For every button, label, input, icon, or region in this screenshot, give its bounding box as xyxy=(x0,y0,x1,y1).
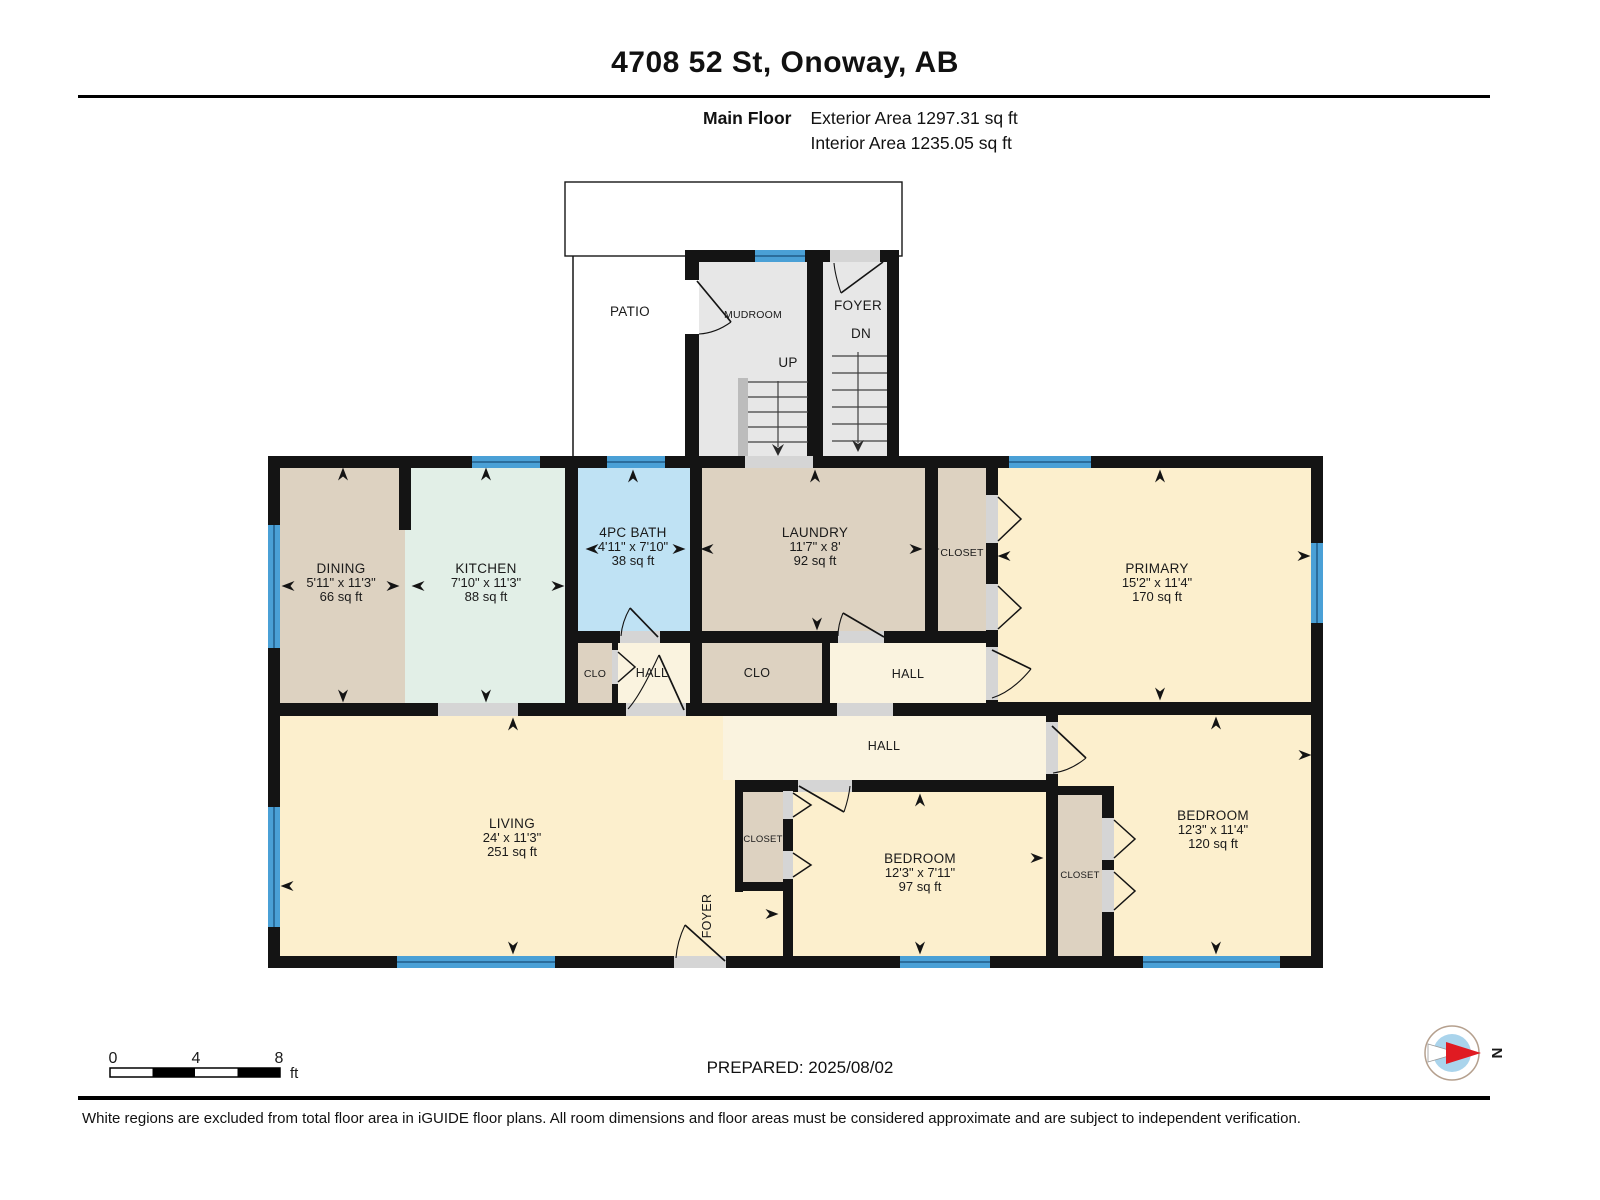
primary-area: 170 sq ft xyxy=(1132,589,1182,604)
footer-divider xyxy=(78,1096,1490,1100)
bedroom-right-label: BEDROOM xyxy=(1177,808,1249,823)
wall xyxy=(735,782,743,892)
wall-opening xyxy=(986,584,998,630)
closet-bed1-label: CLOSET xyxy=(743,834,782,845)
north-label: N xyxy=(1488,1048,1505,1059)
clo-1-label: CLO xyxy=(584,668,606,680)
deck-outline xyxy=(565,182,902,256)
wall-opening xyxy=(837,703,893,716)
closet-top-label: CLOSET xyxy=(940,547,984,559)
kitchen-area: 88 sq ft xyxy=(465,589,508,604)
wall xyxy=(822,643,830,703)
primary-label: PRIMARY xyxy=(1125,561,1188,576)
kitchen-dims: 7'10" x 11'3" xyxy=(451,575,522,590)
bath-area: 38 sq ft xyxy=(612,553,655,568)
mudroom-label: MUDROOM xyxy=(724,309,782,321)
bedroom-right-area: 120 sq ft xyxy=(1188,836,1238,851)
laundry-dims: 11'7" x 8' xyxy=(789,539,840,554)
prepared-date: PREPARED: 2025/08/02 xyxy=(0,1058,1600,1078)
floor-plan-svg: PATIO MUDROOM FOYER DN UP DINING 5'11" x… xyxy=(0,0,1600,1200)
dining-label: DINING xyxy=(316,561,365,576)
hall-main-label: HALL xyxy=(868,739,900,753)
disclaimer-text: White regions are excluded from total fl… xyxy=(82,1110,1512,1127)
dining-area: 66 sq ft xyxy=(320,589,363,604)
closet-bed2-label: CLOSET xyxy=(1060,870,1099,881)
bedroom-mid-dims: 12'3" x 7'11" xyxy=(885,865,956,880)
primary-dims: 15'2" x 11'4" xyxy=(1122,575,1193,590)
living-dims: 24' x 11'3" xyxy=(483,830,542,845)
wall-opening xyxy=(1102,870,1114,912)
bath-label: 4PC BATH xyxy=(599,525,666,540)
stair-edge-strip xyxy=(738,378,748,456)
patio-label: PATIO xyxy=(610,304,650,319)
foyer-dn-label: DN xyxy=(851,326,871,341)
wall-opening xyxy=(986,495,998,543)
wall xyxy=(986,702,1323,715)
wall xyxy=(887,250,899,468)
dining-dims: 5'11" x 11'3" xyxy=(306,575,376,590)
wall-opening xyxy=(626,703,686,716)
patio-door-opening xyxy=(685,280,699,334)
stairs-up-label: UP xyxy=(778,355,797,370)
wall-opening xyxy=(438,703,518,716)
foyer-lower-label: FOYER xyxy=(700,894,714,939)
room-bedroom-right xyxy=(1058,715,1311,790)
bedroom-mid-area: 97 sq ft xyxy=(899,879,942,894)
wall-opening xyxy=(674,956,726,968)
room-foyer-upper xyxy=(823,262,887,456)
living-label: LIVING xyxy=(489,816,535,831)
floor-plan-page: 4708 52 St, Onoway, AB Main Floor Exteri… xyxy=(0,0,1600,1200)
hall-1-label: HALL xyxy=(636,666,668,680)
wall-opening xyxy=(783,851,793,879)
wall xyxy=(399,468,411,530)
wall xyxy=(690,468,702,631)
bedroom-mid-label: BEDROOM xyxy=(884,851,956,866)
laundry-label: LAUNDRY xyxy=(782,525,848,540)
wall xyxy=(807,256,823,456)
wall-opening xyxy=(986,647,998,700)
laundry-area: 92 sq ft xyxy=(794,553,837,568)
wall xyxy=(690,643,702,703)
wall-opening xyxy=(830,250,880,262)
living-area: 251 sq ft xyxy=(487,844,537,859)
hall-2-label: HALL xyxy=(892,667,924,681)
wall-opening xyxy=(612,650,618,684)
bath-dims: 4'11" x 7'10" xyxy=(598,539,669,554)
clo-2-label: CLO xyxy=(744,666,771,680)
bedroom-right-dims: 12'3" x 11'4" xyxy=(1178,822,1249,837)
foyer-upper-label: FOYER xyxy=(834,298,882,313)
wall-opening xyxy=(1102,818,1114,860)
kitchen-label: KITCHEN xyxy=(455,561,516,576)
wall-opening xyxy=(783,791,793,819)
wall xyxy=(565,468,578,716)
wall-opening xyxy=(745,456,813,468)
